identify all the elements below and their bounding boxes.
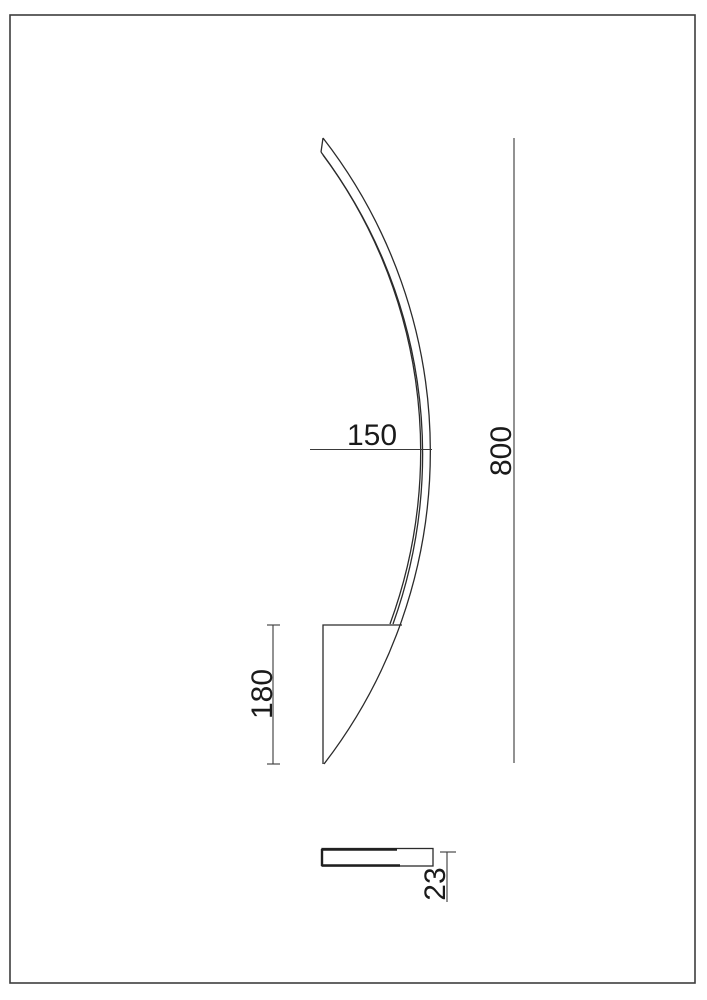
dimension-180: 180 bbox=[246, 625, 280, 764]
side-view bbox=[322, 849, 433, 867]
blade-inner-curve-2 bbox=[323, 155, 423, 624]
drawing-border bbox=[10, 15, 695, 983]
technical-drawing: 150 800 180 23 bbox=[0, 0, 707, 1000]
dimension-23: 23 bbox=[419, 852, 456, 902]
dim-23-label: 23 bbox=[419, 867, 452, 900]
blade-inner-curve-1 bbox=[321, 152, 421, 624]
side-view-outline bbox=[322, 849, 433, 867]
blade-tip-cap bbox=[321, 138, 323, 152]
bracket-outline bbox=[323, 625, 402, 764]
drawing-sheet: 150 800 180 23 bbox=[0, 0, 707, 1000]
dim-180-label: 180 bbox=[246, 669, 279, 719]
dimension-150: 150 bbox=[310, 419, 432, 452]
dimension-800: 800 bbox=[485, 138, 518, 763]
dim-150-label: 150 bbox=[347, 419, 397, 452]
dim-800-label: 800 bbox=[485, 426, 518, 476]
